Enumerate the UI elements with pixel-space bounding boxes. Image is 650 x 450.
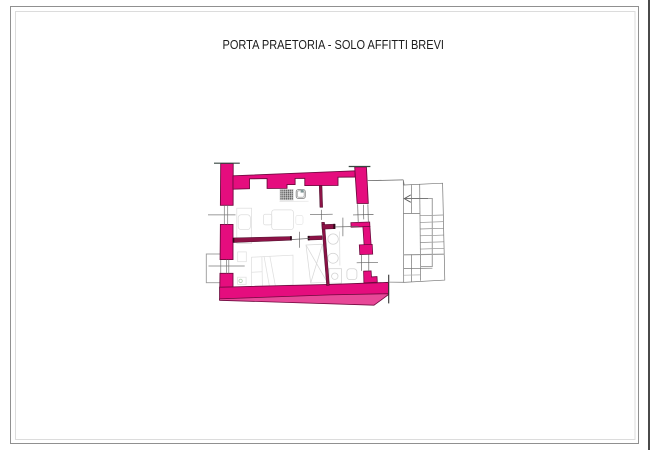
svg-text:PORTA PRAETORIA - SOLO AFFITTI: PORTA PRAETORIA - SOLO AFFITTI BREVI	[223, 38, 445, 52]
